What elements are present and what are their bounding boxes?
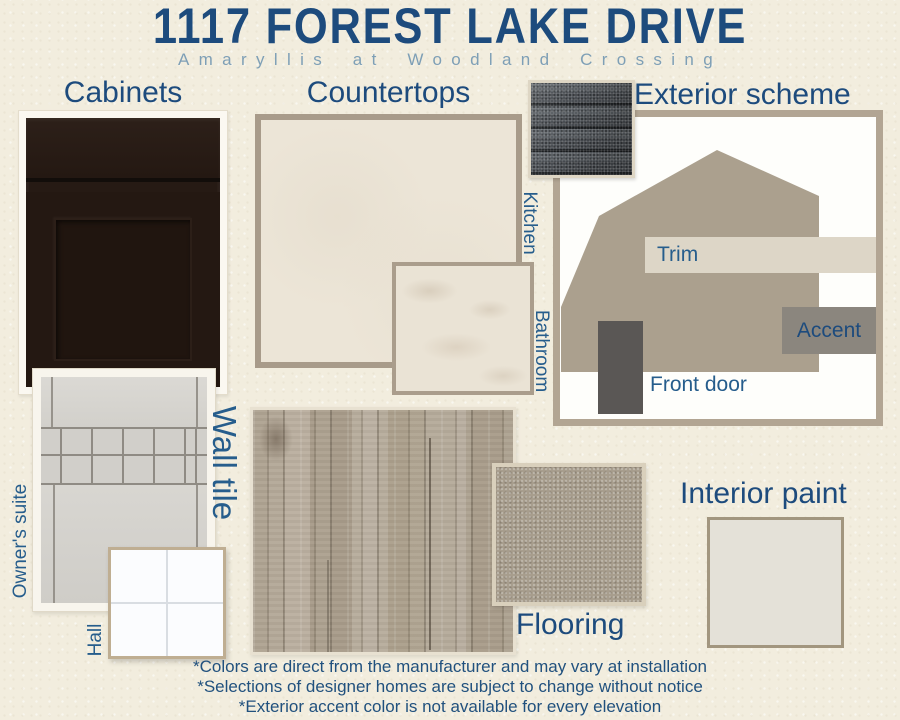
page-title: 1117 FOREST LAKE DRIVE <box>59 0 842 52</box>
trim-color-bar: Trim <box>645 237 876 273</box>
cabinet-drawer-front <box>26 118 220 182</box>
hall-tile-swatch <box>108 547 226 659</box>
wood-seam-detail <box>327 560 329 655</box>
wood-knot-detail <box>259 416 293 462</box>
carpet-swatch <box>492 463 646 606</box>
trim-label: Trim <box>645 237 876 273</box>
cabinet-recessed-panel <box>54 218 192 361</box>
wall-tile-section-label: Wall tile <box>205 406 243 520</box>
footnote-line: *Exterior accent color is not available … <box>0 697 900 717</box>
interior-paint-swatch <box>707 517 844 648</box>
accent-color-swatch: Accent <box>782 307 876 354</box>
cabinets-section-label: Cabinets <box>18 76 228 110</box>
kitchen-label: Kitchen <box>518 191 540 254</box>
wood-seam-detail <box>429 438 431 650</box>
design-selections-board: 1117 FOREST LAKE DRIVE Amaryllis at Wood… <box>0 0 900 720</box>
front-door-label: Front door <box>650 373 747 397</box>
wood-flooring-swatch <box>250 407 516 655</box>
wall-tile-mosaic-band <box>41 427 207 485</box>
exterior-section-label: Exterior scheme <box>634 78 851 112</box>
front-door-color-swatch <box>598 321 643 414</box>
flooring-section-label: Flooring <box>516 608 624 642</box>
cabinet-door-swatch <box>18 110 228 395</box>
footnote-line: *Colors are direct from the manufacturer… <box>0 657 900 677</box>
bathroom-countertop-swatch <box>392 262 534 395</box>
footnote-line: *Selections of designer homes are subjec… <box>0 677 900 697</box>
accent-label: Accent <box>782 307 876 354</box>
page-subtitle: Amaryllis at Woodland Crossing <box>0 50 900 70</box>
countertops-section-label: Countertops <box>255 76 522 110</box>
wall-tile-large-tiles-top <box>41 377 207 427</box>
interior-paint-section-label: Interior paint <box>680 477 847 511</box>
owners-suite-label: Owner's suite <box>10 484 32 599</box>
cabinet-door-front <box>26 192 220 387</box>
roof-shingle-swatch <box>528 80 635 178</box>
disclaimer-footnotes: *Colors are direct from the manufacturer… <box>0 657 900 717</box>
bathroom-label: Bathroom <box>530 310 552 392</box>
cabinet-door-image <box>26 118 220 387</box>
hall-label: Hall <box>85 624 107 657</box>
